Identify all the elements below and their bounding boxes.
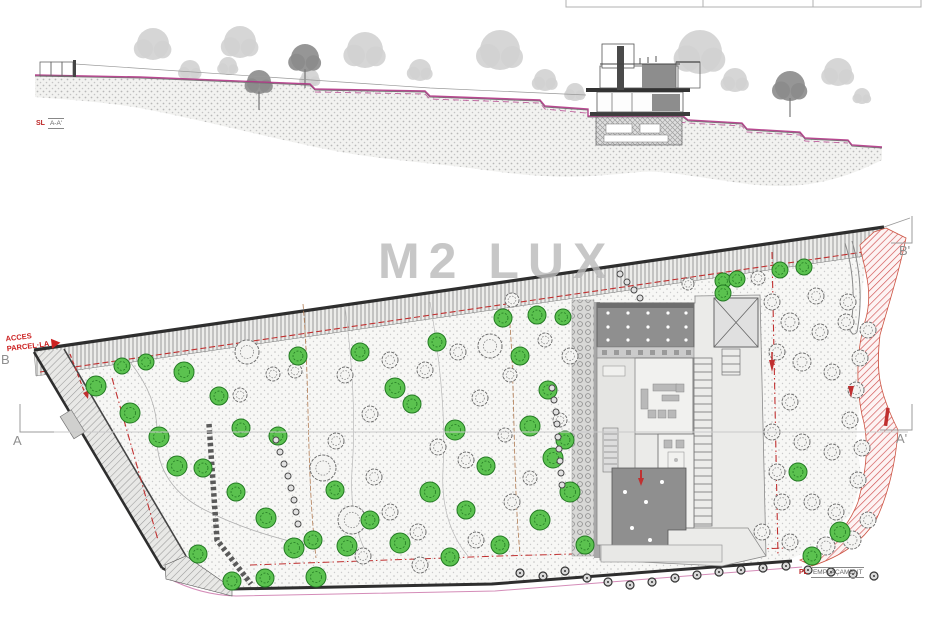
gray-tree [781,313,799,331]
louver-deck [603,428,618,472]
light-tree-section [852,88,871,104]
gray-tree [764,294,780,310]
green-tree [304,531,322,549]
gray-tree [450,344,466,360]
green-tree [120,403,140,423]
dark-tree-section [772,71,807,117]
marker-b-prime: B' [899,243,910,258]
post-dot [648,578,656,586]
green-tree [223,572,241,590]
gray-tree [842,412,858,428]
green-tree [520,416,540,436]
gray-tree [235,340,259,364]
gray-tree [824,444,840,460]
light-tree-section [407,59,433,81]
green-tree [445,420,465,440]
gray-tree [854,440,870,456]
gray-tree [472,390,488,406]
gray-tree [808,288,824,304]
green-tree [576,536,594,554]
light-tree-section [134,28,172,60]
green-tree [138,354,154,370]
gray-tree [769,464,785,480]
south-terrace [601,545,722,562]
marker-a-prime: A' [896,431,907,446]
gray-tree [458,452,474,468]
post-dot [759,564,767,572]
gray-tree [860,322,876,338]
pergola-roof [597,303,694,347]
east-stair [694,358,712,526]
stair-core [617,46,624,90]
gray-tree [682,278,694,290]
green-tree [114,358,130,374]
gray-tree [503,368,517,382]
green-tree [803,547,821,565]
post-dot [516,569,524,577]
green-tree [289,347,307,365]
gray-tree [498,428,512,442]
post-dot [870,572,878,580]
gray-tree [812,324,828,340]
mid-slab [586,88,690,92]
green-tree [232,419,250,437]
green-tree [194,459,212,477]
gray-tree [412,557,428,573]
green-tree [210,387,228,405]
gray-tree [860,512,876,528]
gray-tree [410,524,426,540]
title-block-strip [566,0,921,7]
green-tree [390,533,410,553]
gray-tree [366,469,382,485]
green-tree [555,309,571,325]
post-dot [539,572,547,580]
fence-section [40,60,76,77]
green-tree [256,569,274,587]
marker-b: B [1,352,10,367]
light-tree-section [217,57,238,75]
light-tree-section [721,68,749,92]
gray-tree [794,434,810,450]
gray-tree [504,494,520,510]
post-dot [671,574,679,582]
green-tree [477,457,495,475]
post-dot [561,567,569,575]
post-dot [693,571,701,579]
green-tree [189,545,207,563]
post-dot [737,566,745,574]
earth-mass [35,76,882,186]
gray-tree [840,294,856,310]
post-dot [715,568,723,576]
green-tree [457,501,475,519]
gray-tree [430,439,446,455]
green-tree [511,347,529,365]
green-tree [351,343,369,361]
section-view [35,26,882,186]
green-tree [306,567,326,587]
plan-tag: PL EMPLAÇAMENT [799,567,864,578]
gray-tree [382,352,398,368]
gray-tree [828,504,844,520]
gray-tree [288,364,302,378]
light-tree-section [532,69,558,91]
green-tree [830,522,850,542]
green-tree [491,536,509,554]
green-tree [86,376,106,396]
gray-tree [751,271,765,285]
green-tree [167,456,187,476]
gray-tree [804,494,820,510]
gray-tree [505,293,519,307]
drawing-sheet: M2 LUX ACCES PARCEL·LA SL A-A' PL EMPLAÇ… [0,0,935,623]
gray-tree [355,548,371,564]
gray-tree [754,524,770,540]
green-tree [528,306,546,324]
gray-tree [310,455,336,481]
gray-tree [478,334,502,358]
pavilion-stair [722,349,740,375]
gray-tree [774,494,790,510]
green-tree [326,481,344,499]
access-arrow-icon [51,337,61,348]
light-tree-section [343,32,385,68]
section-tag: SL A-A' [36,118,64,129]
light-tree-section [221,26,259,58]
gray-tree [523,471,537,485]
green-tree [227,483,245,501]
base-slab [590,112,690,116]
gray-tree [417,362,433,378]
light-tree-section [476,30,523,70]
green-tree [428,333,446,351]
green-tree [789,463,807,481]
gray-tree [538,333,552,347]
light-tree-section [674,30,726,74]
gray-tree [782,534,798,550]
green-tree [441,548,459,566]
gray-tree [782,394,798,410]
green-tree [149,427,169,447]
stone-hedge-band [572,300,594,556]
green-tree [530,510,550,530]
green-tree [385,378,405,398]
gray-tree [382,504,398,520]
gray-tree [337,367,353,383]
gray-tree [850,472,866,488]
green-tree [796,259,812,275]
green-tree [715,285,731,301]
gray-tree [852,350,868,366]
building-plan [597,295,766,566]
gray-tree [362,406,378,422]
green-tree [729,271,745,287]
post-dot [626,581,634,589]
gray-tree [266,367,280,381]
green-tree [420,482,440,502]
marker-a: A [13,433,22,448]
gray-tree [793,353,811,371]
green-tree [256,508,276,528]
green-tree [174,362,194,382]
post-dot [604,578,612,586]
light-tree-section [178,60,202,80]
gray-tree [233,388,247,402]
bracket-a [20,404,54,432]
gray-tree [838,314,854,330]
green-tree [284,538,304,558]
green-tree [494,309,512,327]
gray-tree [468,532,484,548]
gray-tree [328,433,344,449]
gray-tree [824,364,840,380]
green-tree [337,536,357,556]
gray-tree [562,348,578,364]
site-drawing-canvas [0,0,935,623]
green-tree [772,262,788,278]
post-dot [583,574,591,582]
green-tree [361,511,379,529]
watermark: M2 LUX [378,232,615,290]
light-tree-section [821,58,854,86]
green-tree [403,395,421,413]
light-tree-section [564,83,585,101]
post-dot [782,562,790,570]
